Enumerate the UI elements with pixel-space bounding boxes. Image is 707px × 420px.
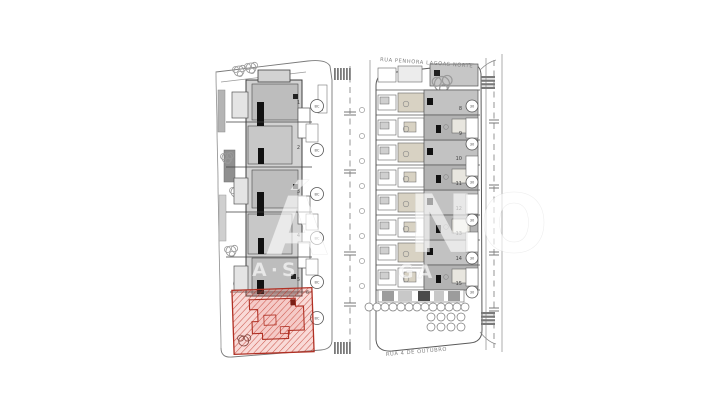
stair-core <box>258 238 264 254</box>
tree-icon <box>225 245 238 256</box>
watermark-sub: GA <box>398 261 436 283</box>
watermark-letter: NO <box>408 178 553 271</box>
crosswalk <box>334 342 351 354</box>
stair-core <box>258 148 264 164</box>
watermark-sub: A·S <box>252 259 300 281</box>
street-name-top: RUA PENHORA LAGOAS NORTE <box>380 57 473 69</box>
crosswalk <box>481 312 495 325</box>
tree-icon <box>233 65 246 76</box>
bay-circle-label: 30 <box>470 104 475 108</box>
bay-circle-label: 30 <box>470 142 475 146</box>
crosswalk <box>334 68 351 80</box>
bay-circle-label: BC <box>315 316 320 320</box>
unit-number: 15 <box>456 281 462 287</box>
bay-circle-label: BC <box>315 104 320 108</box>
site-plan-page: 1 2 3 4 5 6 B08B BC BC BC BC BC BC <box>0 0 707 420</box>
unit-number: 8 <box>459 106 462 112</box>
sidewalk-meters <box>359 107 364 288</box>
middle-road <box>334 60 370 354</box>
garage-strip <box>378 290 464 302</box>
unit-number: 10 <box>456 156 462 162</box>
unit-number: 9 <box>459 131 462 137</box>
retaining-wall <box>218 90 225 132</box>
bay-circle-label: BC <box>315 280 320 284</box>
bay-circle-label: 30 <box>470 290 475 294</box>
site-plan-drawing: 1 2 3 4 5 6 B08B BC BC BC BC BC BC <box>0 0 707 420</box>
unit-number: 1 <box>297 100 300 106</box>
crosswalk <box>481 76 495 89</box>
retaining-wall <box>219 195 226 241</box>
bay-circle-label: BC <box>315 148 320 152</box>
highlighted-unit[interactable] <box>232 288 314 355</box>
unit-number: 2 <box>297 145 300 151</box>
